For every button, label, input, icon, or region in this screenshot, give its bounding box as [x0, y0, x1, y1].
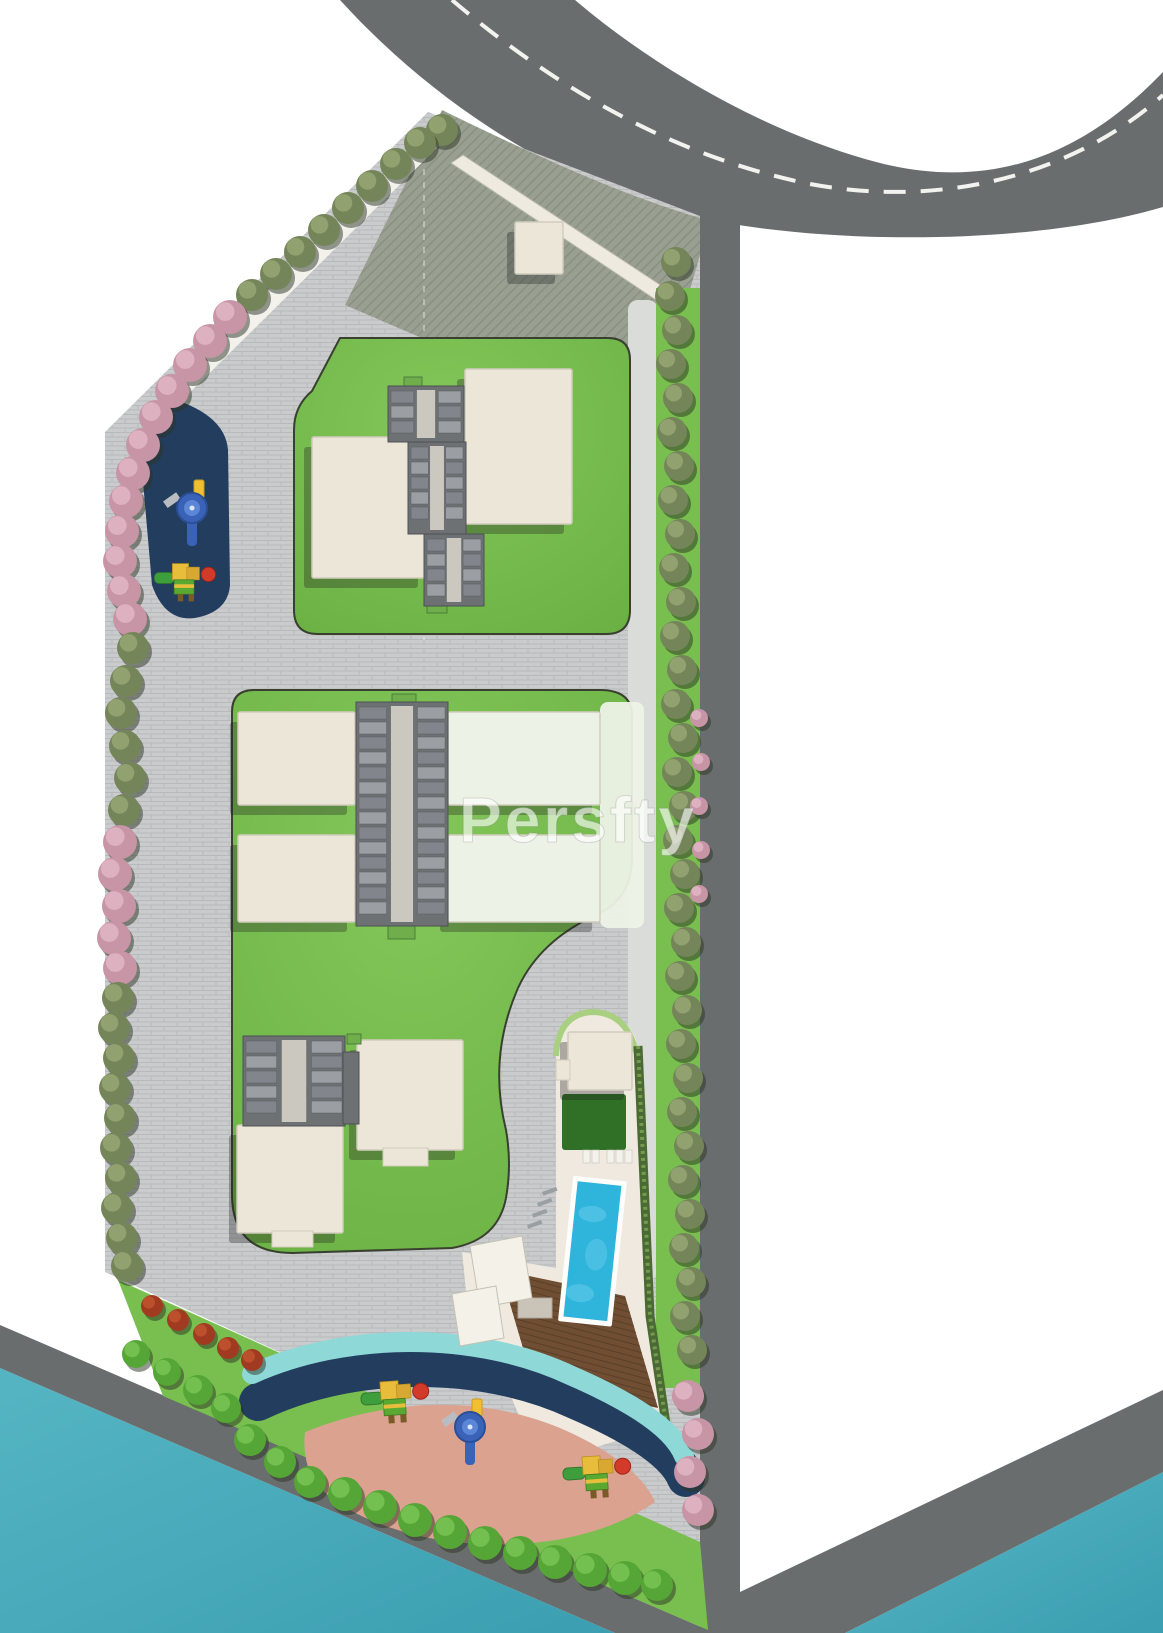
bush-icon-highlight — [611, 1563, 630, 1582]
red-shrub-icon-highlight — [169, 1310, 181, 1322]
green-tree-icon-highlight — [104, 1194, 122, 1212]
green-tree-icon-highlight — [666, 385, 683, 402]
green-tree-icon-highlight — [675, 997, 692, 1014]
entry-kiosk — [515, 222, 563, 274]
green-tree-icon-highlight — [112, 732, 130, 750]
pink-tree-icon-highlight — [129, 430, 148, 449]
bush-icon-highlight — [267, 1448, 285, 1466]
green-tree-icon-highlight — [107, 1104, 125, 1122]
green-tree-icon-highlight — [669, 1031, 686, 1048]
block-c2 — [237, 1125, 343, 1233]
core-unit — [411, 477, 428, 489]
core-unit — [446, 462, 463, 474]
core-unit — [417, 872, 445, 884]
green-tree-icon-highlight — [311, 216, 329, 234]
bush-icon-highlight — [155, 1360, 170, 1375]
core-unit — [427, 554, 445, 566]
green-tree-icon-highlight — [661, 487, 678, 504]
green-tree-icon-highlight — [108, 699, 126, 717]
bush-icon-highlight — [506, 1538, 525, 1557]
green-tree-icon-highlight — [667, 895, 684, 912]
green-tree-icon-highlight — [660, 419, 677, 436]
green-tree-icon-highlight — [670, 657, 687, 674]
green-tree-icon-highlight — [672, 1235, 689, 1252]
core-unit — [359, 857, 387, 869]
green-tree-icon-highlight — [359, 172, 377, 190]
core-unit — [311, 1071, 342, 1083]
core-unit — [359, 842, 387, 854]
core-unit — [246, 1071, 277, 1083]
core-unit — [311, 1056, 342, 1068]
pink-tree-icon-highlight — [108, 516, 127, 535]
green-tree-icon-highlight — [665, 317, 682, 334]
core-unit — [463, 569, 481, 581]
core-unit — [446, 492, 463, 504]
core-unit — [417, 782, 445, 794]
green-tree-icon-highlight — [101, 1014, 119, 1032]
green-tree-icon-highlight — [108, 1164, 126, 1182]
core-unit — [359, 707, 387, 719]
red-shrub-icon-highlight — [219, 1338, 231, 1350]
core-unit — [359, 797, 387, 809]
core-unit — [427, 569, 445, 581]
core-unit — [359, 902, 387, 914]
core-unit — [359, 872, 387, 884]
green-tree-icon-highlight — [680, 1337, 697, 1354]
core-corridor — [282, 1040, 306, 1122]
core-unit — [417, 767, 445, 779]
watermark-text: Persfty — [459, 784, 697, 856]
core-unit — [391, 421, 414, 433]
green-tree-icon-highlight — [103, 1134, 121, 1152]
sun-lounger-icon — [592, 1150, 599, 1163]
core-corridor — [430, 446, 444, 530]
pink-tree-icon-highlight — [116, 604, 135, 623]
pink-tree-icon-highlight — [677, 1458, 695, 1476]
core-unit — [359, 812, 387, 824]
bush-icon-highlight — [644, 1571, 662, 1589]
green-tree-icon-highlight — [117, 764, 135, 782]
block-b1 — [238, 712, 355, 805]
green-tree-icon-highlight — [429, 116, 447, 134]
core-block — [343, 1052, 359, 1124]
green-tree-icon-highlight — [663, 623, 680, 640]
pink-tree-icon-highlight — [106, 953, 125, 972]
green-tree-icon-highlight — [669, 589, 686, 606]
pink-tree-icon-highlight — [685, 1420, 703, 1438]
core-unit — [311, 1041, 342, 1053]
green-tree-icon-highlight — [673, 1303, 690, 1320]
core-unit — [417, 857, 445, 869]
sun-lounger-icon — [607, 1150, 614, 1163]
block-b2 — [238, 835, 355, 922]
green-tree-icon-highlight — [677, 1133, 694, 1150]
bush-icon-highlight — [214, 1395, 231, 1412]
green-tree-icon-highlight — [111, 796, 129, 814]
core-unit — [359, 827, 387, 839]
core-unit — [411, 447, 428, 459]
core-unit — [246, 1041, 277, 1053]
sun-lounger-icon — [616, 1150, 623, 1163]
green-tree-icon-highlight — [105, 984, 123, 1002]
core-unit — [359, 752, 387, 764]
core-unit — [417, 827, 445, 839]
core-unit — [438, 421, 461, 433]
core-unit — [359, 887, 387, 899]
core-unit — [417, 752, 445, 764]
core-corridor — [391, 706, 413, 922]
green-tree-icon-highlight — [287, 238, 305, 256]
bush-icon-highlight — [124, 1342, 139, 1357]
green-tree-icon-highlight — [678, 1201, 695, 1218]
pink-tree-icon-highlight — [216, 302, 235, 321]
core-unit — [391, 391, 414, 403]
sun-lounger-icon — [625, 1150, 632, 1163]
building-entrance-tab — [272, 1231, 313, 1247]
pink-tree-icon-highlight — [112, 486, 131, 505]
green-tree-icon-highlight — [664, 691, 681, 708]
core-unit — [359, 767, 387, 779]
bush-icon-highlight — [186, 1377, 203, 1394]
pink-tree-icon-highlight — [176, 350, 195, 369]
green-tree-icon-highlight — [239, 281, 257, 299]
green-tree-icon-highlight — [671, 1167, 688, 1184]
green-tree-icon-highlight — [668, 963, 685, 980]
block-a2 — [465, 369, 572, 524]
core-unit — [411, 462, 428, 474]
green-tree-icon-highlight — [668, 521, 685, 538]
core-unit — [417, 737, 445, 749]
core-unit — [446, 447, 463, 459]
bush-icon-highlight — [471, 1528, 490, 1547]
core-unit — [417, 902, 445, 914]
landscaped-entrance-tab — [388, 926, 415, 939]
green-tree-icon-highlight — [670, 1099, 687, 1116]
pink-tree-icon-highlight — [685, 1496, 703, 1514]
core-unit — [417, 812, 445, 824]
core-unit — [446, 477, 463, 489]
pink-tree-icon-highlight — [106, 827, 125, 846]
green-tree-icon-highlight — [106, 1044, 124, 1062]
core-unit — [417, 722, 445, 734]
green-tree-icon-highlight — [335, 194, 353, 212]
pool-house — [568, 1032, 632, 1090]
green-tree-icon-highlight — [109, 1224, 127, 1242]
bush-icon-highlight — [366, 1492, 385, 1511]
core-unit — [246, 1086, 277, 1098]
bush-icon-highlight — [331, 1479, 350, 1498]
core-unit — [463, 539, 481, 551]
core-unit — [463, 554, 481, 566]
pink-tree-icon-highlight — [692, 886, 702, 896]
pink-tree-icon-highlight — [694, 754, 704, 764]
pink-tree-icon-highlight — [110, 576, 129, 595]
site-plan-svg: Persfty — [0, 0, 1163, 1633]
green-tree-icon-highlight — [674, 929, 691, 946]
red-shrub-icon-highlight — [195, 1324, 207, 1336]
core-unit — [446, 507, 463, 519]
pink-tree-icon-highlight — [106, 546, 125, 565]
pink-tree-icon-highlight — [119, 458, 138, 477]
core-unit — [438, 391, 461, 403]
pink-tree-icon-highlight — [100, 923, 119, 942]
pink-tree-icon-highlight — [675, 1382, 693, 1400]
core-unit — [411, 492, 428, 504]
red-shrub-icon-highlight — [143, 1296, 155, 1308]
pool-lawn — [562, 1094, 626, 1150]
core-unit — [417, 797, 445, 809]
green-tree-icon-highlight — [667, 453, 684, 470]
pink-tree-icon-highlight — [101, 859, 120, 878]
pink-tree-icon-highlight — [196, 326, 215, 345]
green-tree-icon-highlight — [114, 1252, 132, 1270]
green-tree-icon-highlight — [113, 667, 131, 685]
core-unit — [438, 406, 461, 418]
pink-tree-icon-highlight — [105, 891, 124, 910]
core-unit — [311, 1101, 342, 1113]
green-tree-icon-highlight — [659, 351, 676, 368]
green-tree-icon-highlight — [263, 260, 281, 278]
core-unit — [417, 707, 445, 719]
core-corridor — [447, 538, 461, 602]
bush-icon-highlight — [237, 1426, 255, 1444]
core-unit — [463, 584, 481, 596]
core-unit — [359, 722, 387, 734]
core-corridor — [417, 390, 435, 438]
sun-lounger-icon — [583, 1150, 590, 1163]
green-tree-icon-highlight — [658, 283, 675, 300]
core-unit — [427, 539, 445, 551]
green-tree-icon-highlight — [665, 759, 682, 776]
building-entrance-tab — [383, 1148, 428, 1166]
green-tree-icon-highlight — [662, 555, 679, 572]
core-unit — [246, 1056, 277, 1068]
block-c1 — [357, 1040, 463, 1150]
core-unit — [417, 887, 445, 899]
green-tree-icon-highlight — [664, 249, 681, 266]
core-unit — [391, 406, 414, 418]
core-unit — [359, 782, 387, 794]
bush-icon-highlight — [436, 1517, 455, 1536]
core-unit — [411, 507, 428, 519]
core-unit — [427, 584, 445, 596]
core-unit — [311, 1086, 342, 1098]
bush-icon-highlight — [541, 1547, 560, 1566]
core-unit — [417, 842, 445, 854]
pink-tree-icon-highlight — [158, 376, 177, 395]
core-unit — [246, 1101, 277, 1113]
green-tree-icon-highlight — [676, 1065, 693, 1082]
green-tree-icon-highlight — [671, 725, 688, 742]
site-plan-canvas: Persfty — [0, 0, 1163, 1633]
green-tree-icon-highlight — [120, 634, 138, 652]
green-tree-icon-highlight — [383, 150, 401, 168]
green-tree-icon-highlight — [673, 861, 690, 878]
landscaped-entrance-tab — [347, 1034, 361, 1044]
red-shrub-icon-highlight — [243, 1350, 255, 1362]
green-tree-icon-highlight — [102, 1074, 120, 1092]
pool-steps — [518, 1298, 552, 1318]
building-entrance-tab — [556, 1060, 570, 1080]
bush-icon-highlight — [401, 1505, 420, 1524]
core-unit — [359, 737, 387, 749]
shade-canopy-icon — [452, 1286, 504, 1346]
bush-icon-highlight — [297, 1468, 315, 1486]
pink-tree-icon-highlight — [692, 710, 702, 720]
green-tree-icon-highlight — [407, 129, 425, 147]
pink-tree-icon-highlight — [142, 402, 161, 421]
bush-icon-highlight — [576, 1555, 595, 1574]
green-tree-icon-highlight — [679, 1269, 696, 1286]
